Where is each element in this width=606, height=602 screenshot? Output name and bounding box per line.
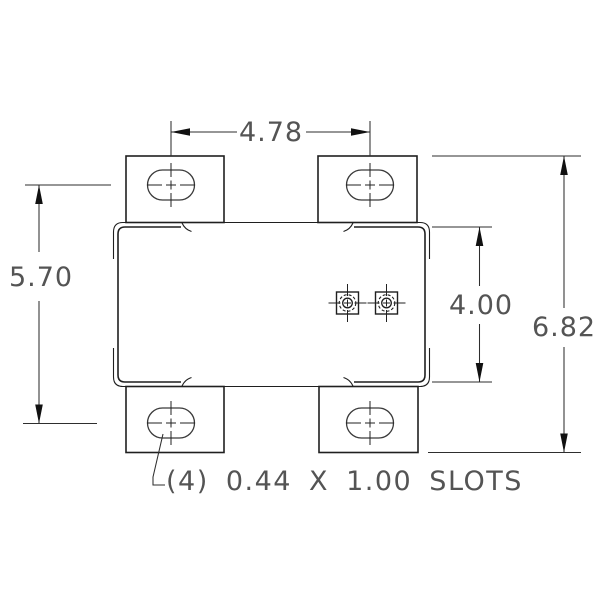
bend-arc-bottom-right — [344, 378, 354, 387]
bend-arc-top-left — [182, 223, 192, 232]
drawing-canvas: 4.78 5.70 4.00 6.82 (4) 0.44 X 1.00 SLOT… — [0, 0, 606, 602]
terminal-studs — [329, 284, 406, 322]
terminal-right — [368, 284, 406, 322]
arrowhead-down — [560, 434, 568, 453]
part-geometry — [114, 156, 430, 453]
dimension-slot-center-height: 5.70 — [9, 185, 111, 424]
arrowhead-up — [476, 227, 484, 246]
dim-text-slot-center-width: 4.78 — [239, 117, 303, 148]
mounting-slots — [148, 170, 394, 438]
arrowhead-right — [351, 128, 370, 136]
dimension-drawing-svg: 4.78 5.70 4.00 6.82 (4) 0.44 X 1.00 SLOT… — [0, 0, 606, 602]
dim-text-overall-height: 6.82 — [532, 312, 596, 343]
arrowhead-up — [560, 156, 568, 175]
bend-relief-arcs — [182, 223, 353, 386]
dim-text-slot-center-height: 5.70 — [9, 262, 73, 293]
arrowhead-left — [171, 128, 190, 136]
slot-note-text: (4) 0.44 X 1.00 SLOTS — [166, 466, 523, 497]
tab-top-left — [126, 156, 224, 223]
center-mark-bottom-right — [346, 401, 394, 445]
center-mark-top-right — [346, 163, 394, 207]
tab-top-right — [318, 156, 417, 223]
slot-note: (4) 0.44 X 1.00 SLOTS — [153, 434, 523, 497]
dim-text-body-height: 4.00 — [449, 290, 513, 321]
center-mark-bottom-left — [147, 401, 195, 445]
slot-center-marks — [147, 163, 394, 445]
dimension-slot-center-width: 4.78 — [171, 117, 370, 156]
arrowhead-down — [476, 363, 484, 382]
terminal-left — [329, 284, 367, 322]
arrowhead-up — [35, 185, 43, 204]
arrowhead-down — [35, 405, 43, 424]
dimension-body-height: 4.00 — [432, 227, 513, 382]
tab-bottom-left — [126, 387, 224, 453]
bend-arc-bottom-left — [182, 378, 192, 387]
center-mark-top-left — [147, 163, 195, 207]
tab-bottom-right — [319, 387, 418, 453]
leader-line — [153, 434, 165, 485]
bend-arc-top-right — [344, 223, 354, 232]
body-outline — [118, 227, 425, 382]
